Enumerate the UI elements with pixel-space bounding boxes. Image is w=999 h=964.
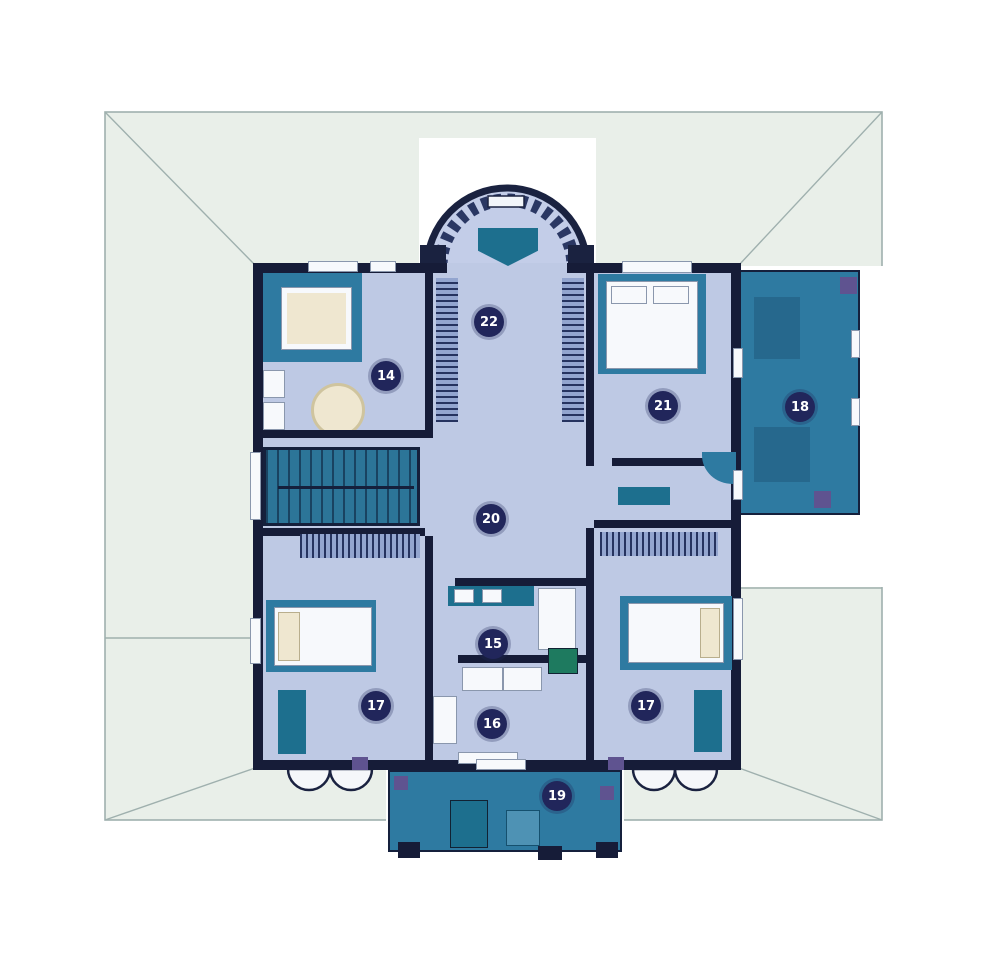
- wall-under-bathroom: [263, 430, 433, 438]
- window-left-stairs: [250, 452, 261, 520]
- bath16-shower-divider: [502, 668, 504, 690]
- window-top-2: [370, 261, 396, 272]
- badge-room-17-right: 17: [631, 691, 661, 721]
- bedR-pillow: [700, 608, 720, 658]
- badge-room-14: 14: [371, 361, 401, 391]
- window-left-bedroom: [250, 618, 261, 664]
- window-top-right: [622, 261, 692, 273]
- terrace-lounger-bottom: [754, 427, 810, 482]
- bedL-pillow: [278, 612, 300, 661]
- terrace-post-top: [840, 277, 857, 294]
- wall-bath15-top: [455, 578, 586, 586]
- postR: [608, 757, 624, 770]
- terrace-post-bottom: [814, 491, 831, 508]
- badge-room-21: 21: [648, 391, 678, 421]
- bedR-mattress: [628, 603, 724, 663]
- terrace-rail-gap-2: [851, 398, 860, 426]
- bath15-tub: [538, 588, 576, 650]
- wardrobe-bayroom-right: [562, 278, 584, 422]
- bath16-fixture-left: [433, 696, 457, 744]
- bed21-pillow-left: [611, 286, 647, 304]
- balcony-table: [450, 800, 488, 848]
- window-right-bedroom: [733, 598, 743, 660]
- deskL: [278, 690, 306, 754]
- door-terrace-2: [733, 470, 743, 500]
- round-tub: [311, 383, 365, 437]
- balcony-post-mid-right: [600, 786, 614, 800]
- door-terrace-1: [733, 348, 743, 378]
- bathtub: [281, 287, 352, 350]
- bath16-shower: [462, 667, 542, 691]
- badge-room-20: 20: [476, 504, 506, 534]
- badge-room-15: 15: [478, 629, 508, 659]
- balcony-pillar-center: [538, 846, 562, 860]
- wall-top-bedroomR: [594, 520, 741, 528]
- door-balcony: [476, 759, 526, 770]
- badge-room-22: 22: [474, 307, 504, 337]
- deskR: [694, 690, 722, 752]
- wardrobe-bayroom-left: [436, 278, 458, 422]
- badge-room-16: 16: [477, 709, 507, 739]
- wall-bayroom-right: [586, 273, 594, 466]
- wall-corridor-left: [425, 536, 433, 762]
- wardrobe-bedroomR: [600, 532, 718, 556]
- window-top-1: [308, 261, 358, 272]
- balcony-chair: [506, 810, 540, 846]
- floor-plan-canvas: 14 22 21 18 20 15 16 17 17 19: [0, 0, 999, 964]
- terrace-rail-gap-1: [851, 330, 860, 358]
- wall-bayroom-left: [425, 273, 433, 438]
- balcony-pillar-left: [398, 842, 420, 858]
- wardrobe-bedroomL: [300, 534, 420, 558]
- balcony: [388, 770, 622, 852]
- badge-room-17-left: 17: [361, 691, 391, 721]
- dresser-hall: [618, 487, 670, 505]
- bed21-pillow-right: [653, 286, 689, 304]
- vanity-counter: [448, 586, 534, 606]
- bidet: [263, 402, 285, 430]
- sink-2: [482, 589, 502, 603]
- toilet: [263, 370, 285, 398]
- bay-top-window: [488, 196, 524, 207]
- balcony-pillar-right: [596, 842, 618, 858]
- staircase: [263, 447, 420, 526]
- postL: [352, 757, 368, 770]
- wall-corridor-right: [586, 528, 594, 762]
- bed21-mattress: [606, 281, 698, 369]
- bathtub-basin: [287, 293, 346, 344]
- bedL-mattress: [274, 607, 372, 666]
- terrace-lounger-top: [754, 297, 800, 359]
- badge-room-18: 18: [785, 392, 815, 422]
- stair-rail: [278, 486, 414, 489]
- sink-1: [454, 589, 474, 603]
- balcony-post-top-left: [394, 776, 408, 790]
- shower-green-unit: [548, 648, 578, 674]
- badge-room-19: 19: [542, 781, 572, 811]
